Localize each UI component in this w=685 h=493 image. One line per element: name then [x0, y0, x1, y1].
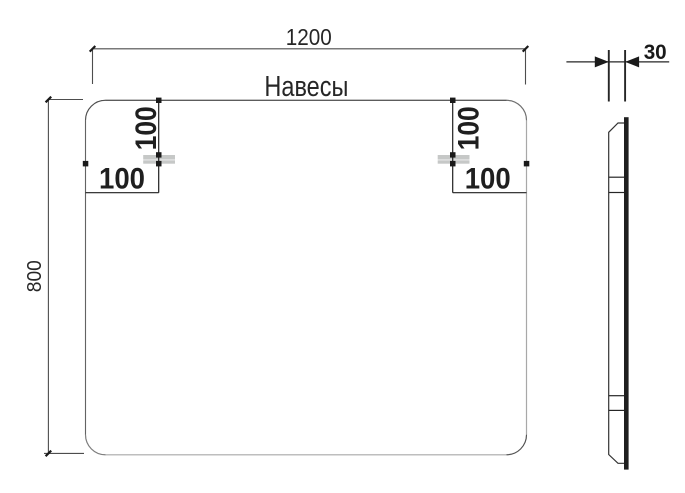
svg-text:800: 800 [24, 260, 46, 292]
svg-text:1200: 1200 [286, 24, 332, 50]
svg-text:100: 100 [465, 162, 511, 195]
svg-text:100: 100 [130, 106, 163, 150]
svg-text:30: 30 [644, 41, 667, 64]
svg-text:100: 100 [99, 162, 145, 195]
svg-text:Навесы: Навесы [264, 71, 348, 103]
svg-text:100: 100 [452, 106, 485, 150]
